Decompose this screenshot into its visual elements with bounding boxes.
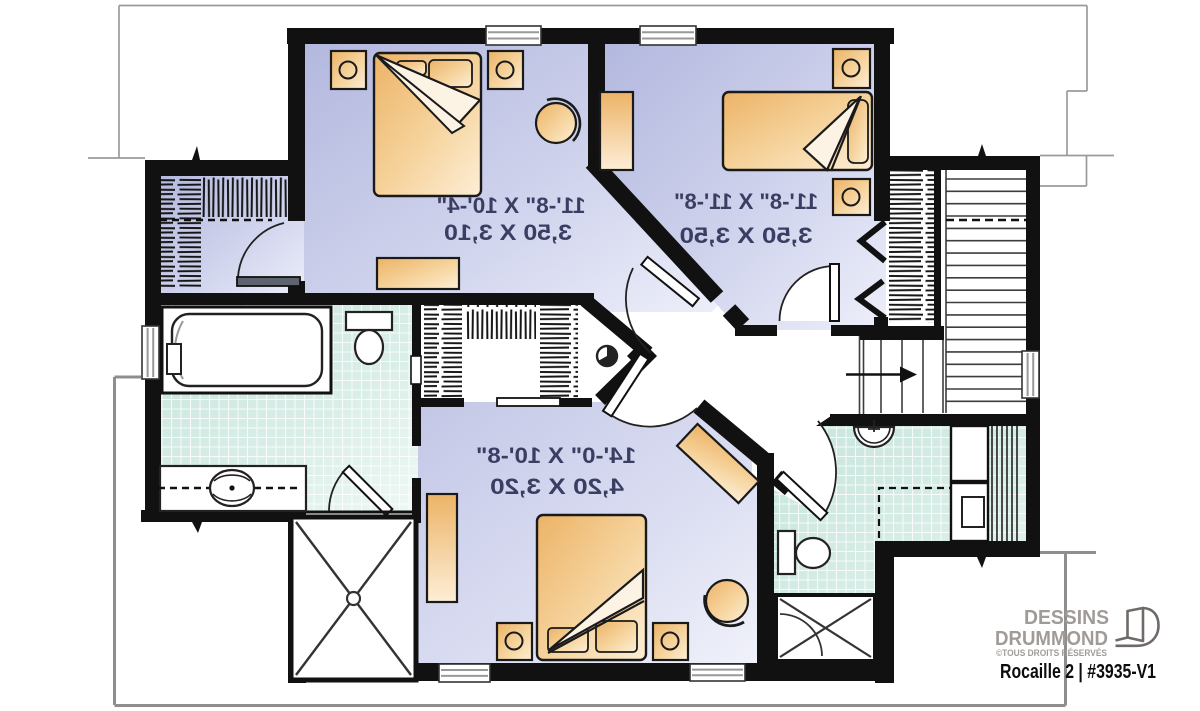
svg-text:4,20 X 3,20: 4,20 X 3,20 <box>490 474 624 499</box>
svg-text:DRUMMOND: DRUMMOND <box>995 628 1108 650</box>
svg-text:©TOUS DROITS RÉSERVÉS: ©TOUS DROITS RÉSERVÉS <box>996 648 1107 658</box>
svg-text:Rocaille 2 | #3935-V1: Rocaille 2 | #3935-V1 <box>1000 661 1156 683</box>
svg-text:DESSINS: DESSINS <box>1024 607 1109 629</box>
svg-text:11'-8" X 10'-4": 11'-8" X 10'-4" <box>437 193 586 218</box>
svg-text:11'-8" X 11'-8": 11'-8" X 11'-8" <box>674 189 818 214</box>
svg-text:3,50 X 3,50: 3,50 X 3,50 <box>680 223 813 248</box>
svg-text:3,50 X 3,10: 3,50 X 3,10 <box>444 220 572 245</box>
svg-text:14'-0" X 10'-8": 14'-0" X 10'-8" <box>476 443 636 468</box>
